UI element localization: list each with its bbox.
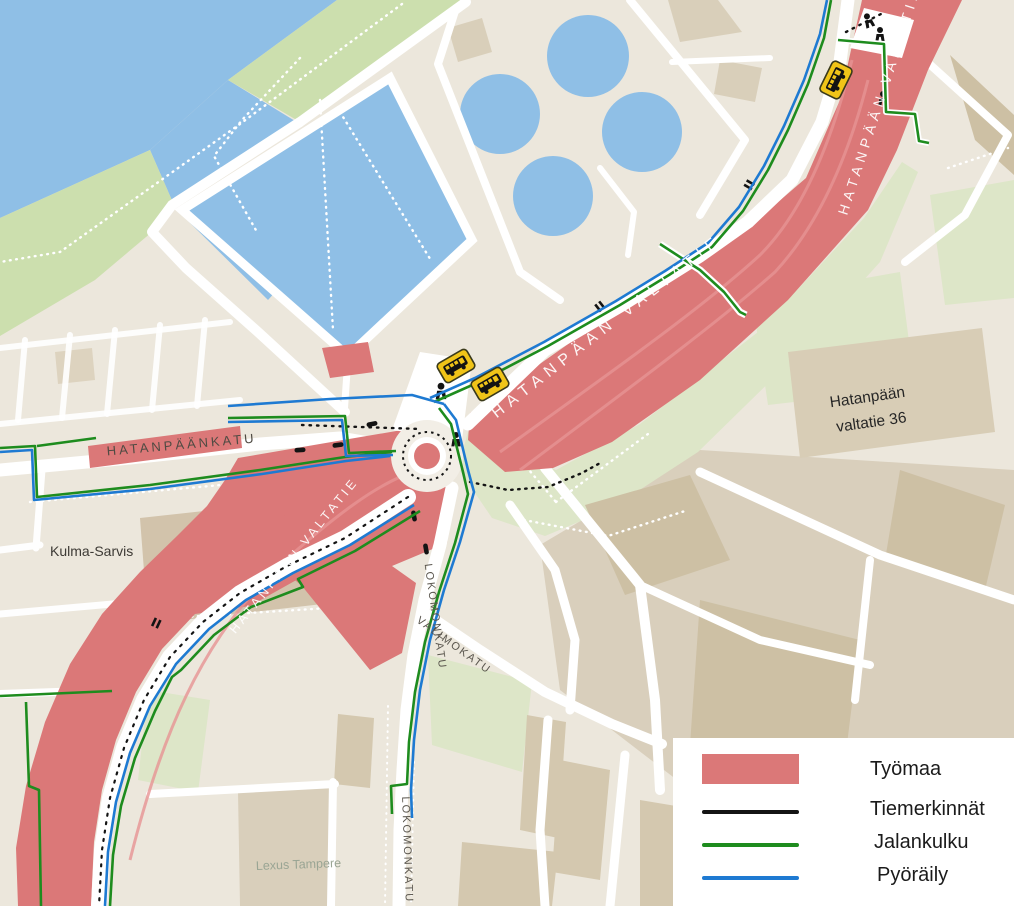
legend-row-tiemerkinnat: Tiemerkinnät [702, 810, 799, 814]
legend-row-jalankulku: Jalankulku [702, 843, 799, 847]
legend-label-cycling: Pyöräily [877, 864, 948, 887]
circular-pool-3 [602, 92, 682, 172]
legend-label-road-markings: Tiemerkinnät [870, 798, 985, 821]
legend-swatch-pedestrian [702, 843, 799, 847]
legend-label-pedestrian: Jalankulku [874, 831, 969, 854]
legend-swatch-construction [702, 754, 799, 784]
legend-swatch-cycling [702, 876, 799, 880]
place-label-kulma-sarvis: Kulma-Sarvis [50, 543, 133, 559]
legend-swatch-road-markings [702, 810, 799, 814]
traffic-map: HATANPÄÄNKATU HATANPÄÄN VALTATIE HATANPÄ… [0, 0, 1014, 906]
legend-label-construction: Työmaa [870, 758, 941, 781]
roundabout-center-construction [414, 443, 440, 469]
circular-pool-4 [513, 156, 593, 236]
legend: Työmaa Tiemerkinnät Jalankulku Pyöräily [673, 738, 1014, 906]
legend-row-tyomaa: Työmaa [702, 754, 799, 784]
legend-row-pyoraily: Pyöräily [702, 876, 799, 880]
circular-pool-2 [547, 15, 629, 97]
vehicle-marking-icon [294, 447, 305, 452]
place-label-lexus-tampere: Lexus Tampere [256, 856, 342, 873]
